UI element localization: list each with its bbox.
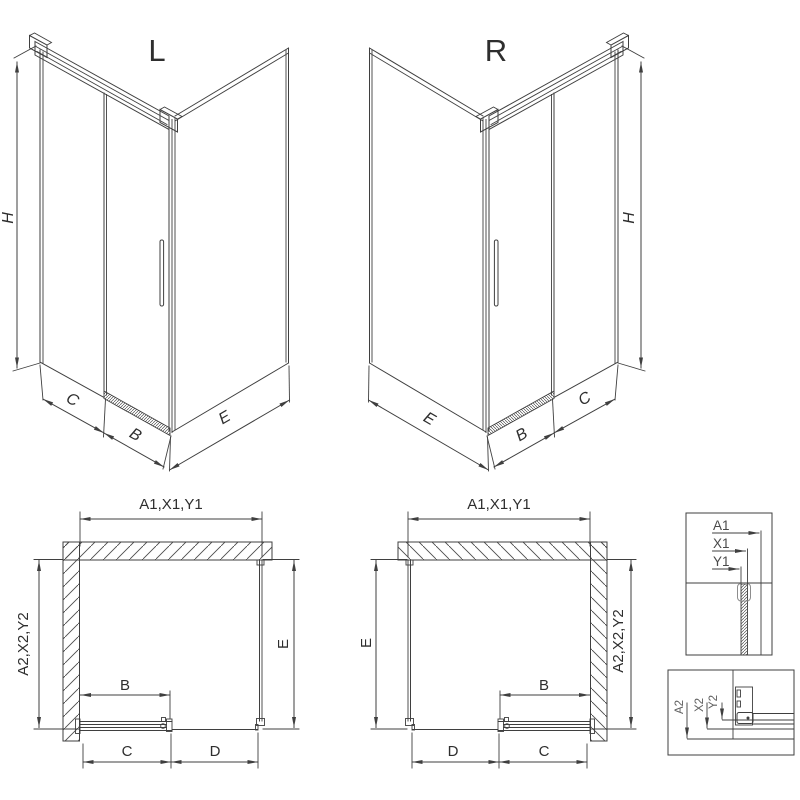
plan-left-dim-c: C xyxy=(122,743,133,760)
plan-right-dim-depth: A2,X2,Y2 xyxy=(610,609,627,672)
technical-diagram: L H C B E R H E B C xyxy=(0,0,800,800)
detail-depth-label-y2: Y2 xyxy=(708,695,720,709)
plan-right-dim-e: E xyxy=(358,638,375,648)
iso-right-structure xyxy=(369,33,646,471)
detail-depth-box: A2 X2 Y2 xyxy=(668,670,794,755)
plan-left-dim-width: A1,X1,Y1 xyxy=(139,496,202,513)
iso-left-dim-e: E xyxy=(216,408,234,428)
iso-left-structure xyxy=(13,33,290,471)
plan-left-dim-d: D xyxy=(210,743,221,760)
iso-right-dim-h: H xyxy=(621,212,638,224)
iso-right-title: R xyxy=(485,33,507,68)
iso-right-dim-c: C xyxy=(576,389,595,410)
plan-right-structure xyxy=(371,512,636,768)
iso-right-dim-e: E xyxy=(420,409,438,429)
iso-left-dim-h: H xyxy=(0,212,17,224)
iso-right-dim-b: B xyxy=(513,425,531,445)
detail-width-box: A1 X1 Y1 xyxy=(686,513,772,655)
detail-width-label-y1: Y1 xyxy=(713,554,730,569)
iso-left-dim-c: C xyxy=(63,390,82,411)
plan-left-dim-b: B xyxy=(120,677,130,694)
plan-right-dim-d: D xyxy=(448,743,459,760)
plan-left-dim-e: E xyxy=(275,639,292,649)
plan-right-dim-c: C xyxy=(539,743,550,760)
iso-left-dim-b: B xyxy=(126,425,144,445)
iso-left-title: L xyxy=(148,33,165,68)
plan-right-dim-width: A1,X1,Y1 xyxy=(467,496,530,513)
detail-width-label-a1: A1 xyxy=(713,518,730,533)
detail-depth-label-x2: X2 xyxy=(694,698,706,712)
diagram-svg: L H C B E R H E B C xyxy=(0,0,800,800)
plan-left-dim-depth: A2,X2,Y2 xyxy=(15,612,32,675)
detail-depth-label-a2: A2 xyxy=(674,700,686,714)
plan-left-structure xyxy=(34,512,299,768)
plan-right-dim-b: B xyxy=(539,677,549,694)
detail-width-label-x1: X1 xyxy=(713,536,730,551)
